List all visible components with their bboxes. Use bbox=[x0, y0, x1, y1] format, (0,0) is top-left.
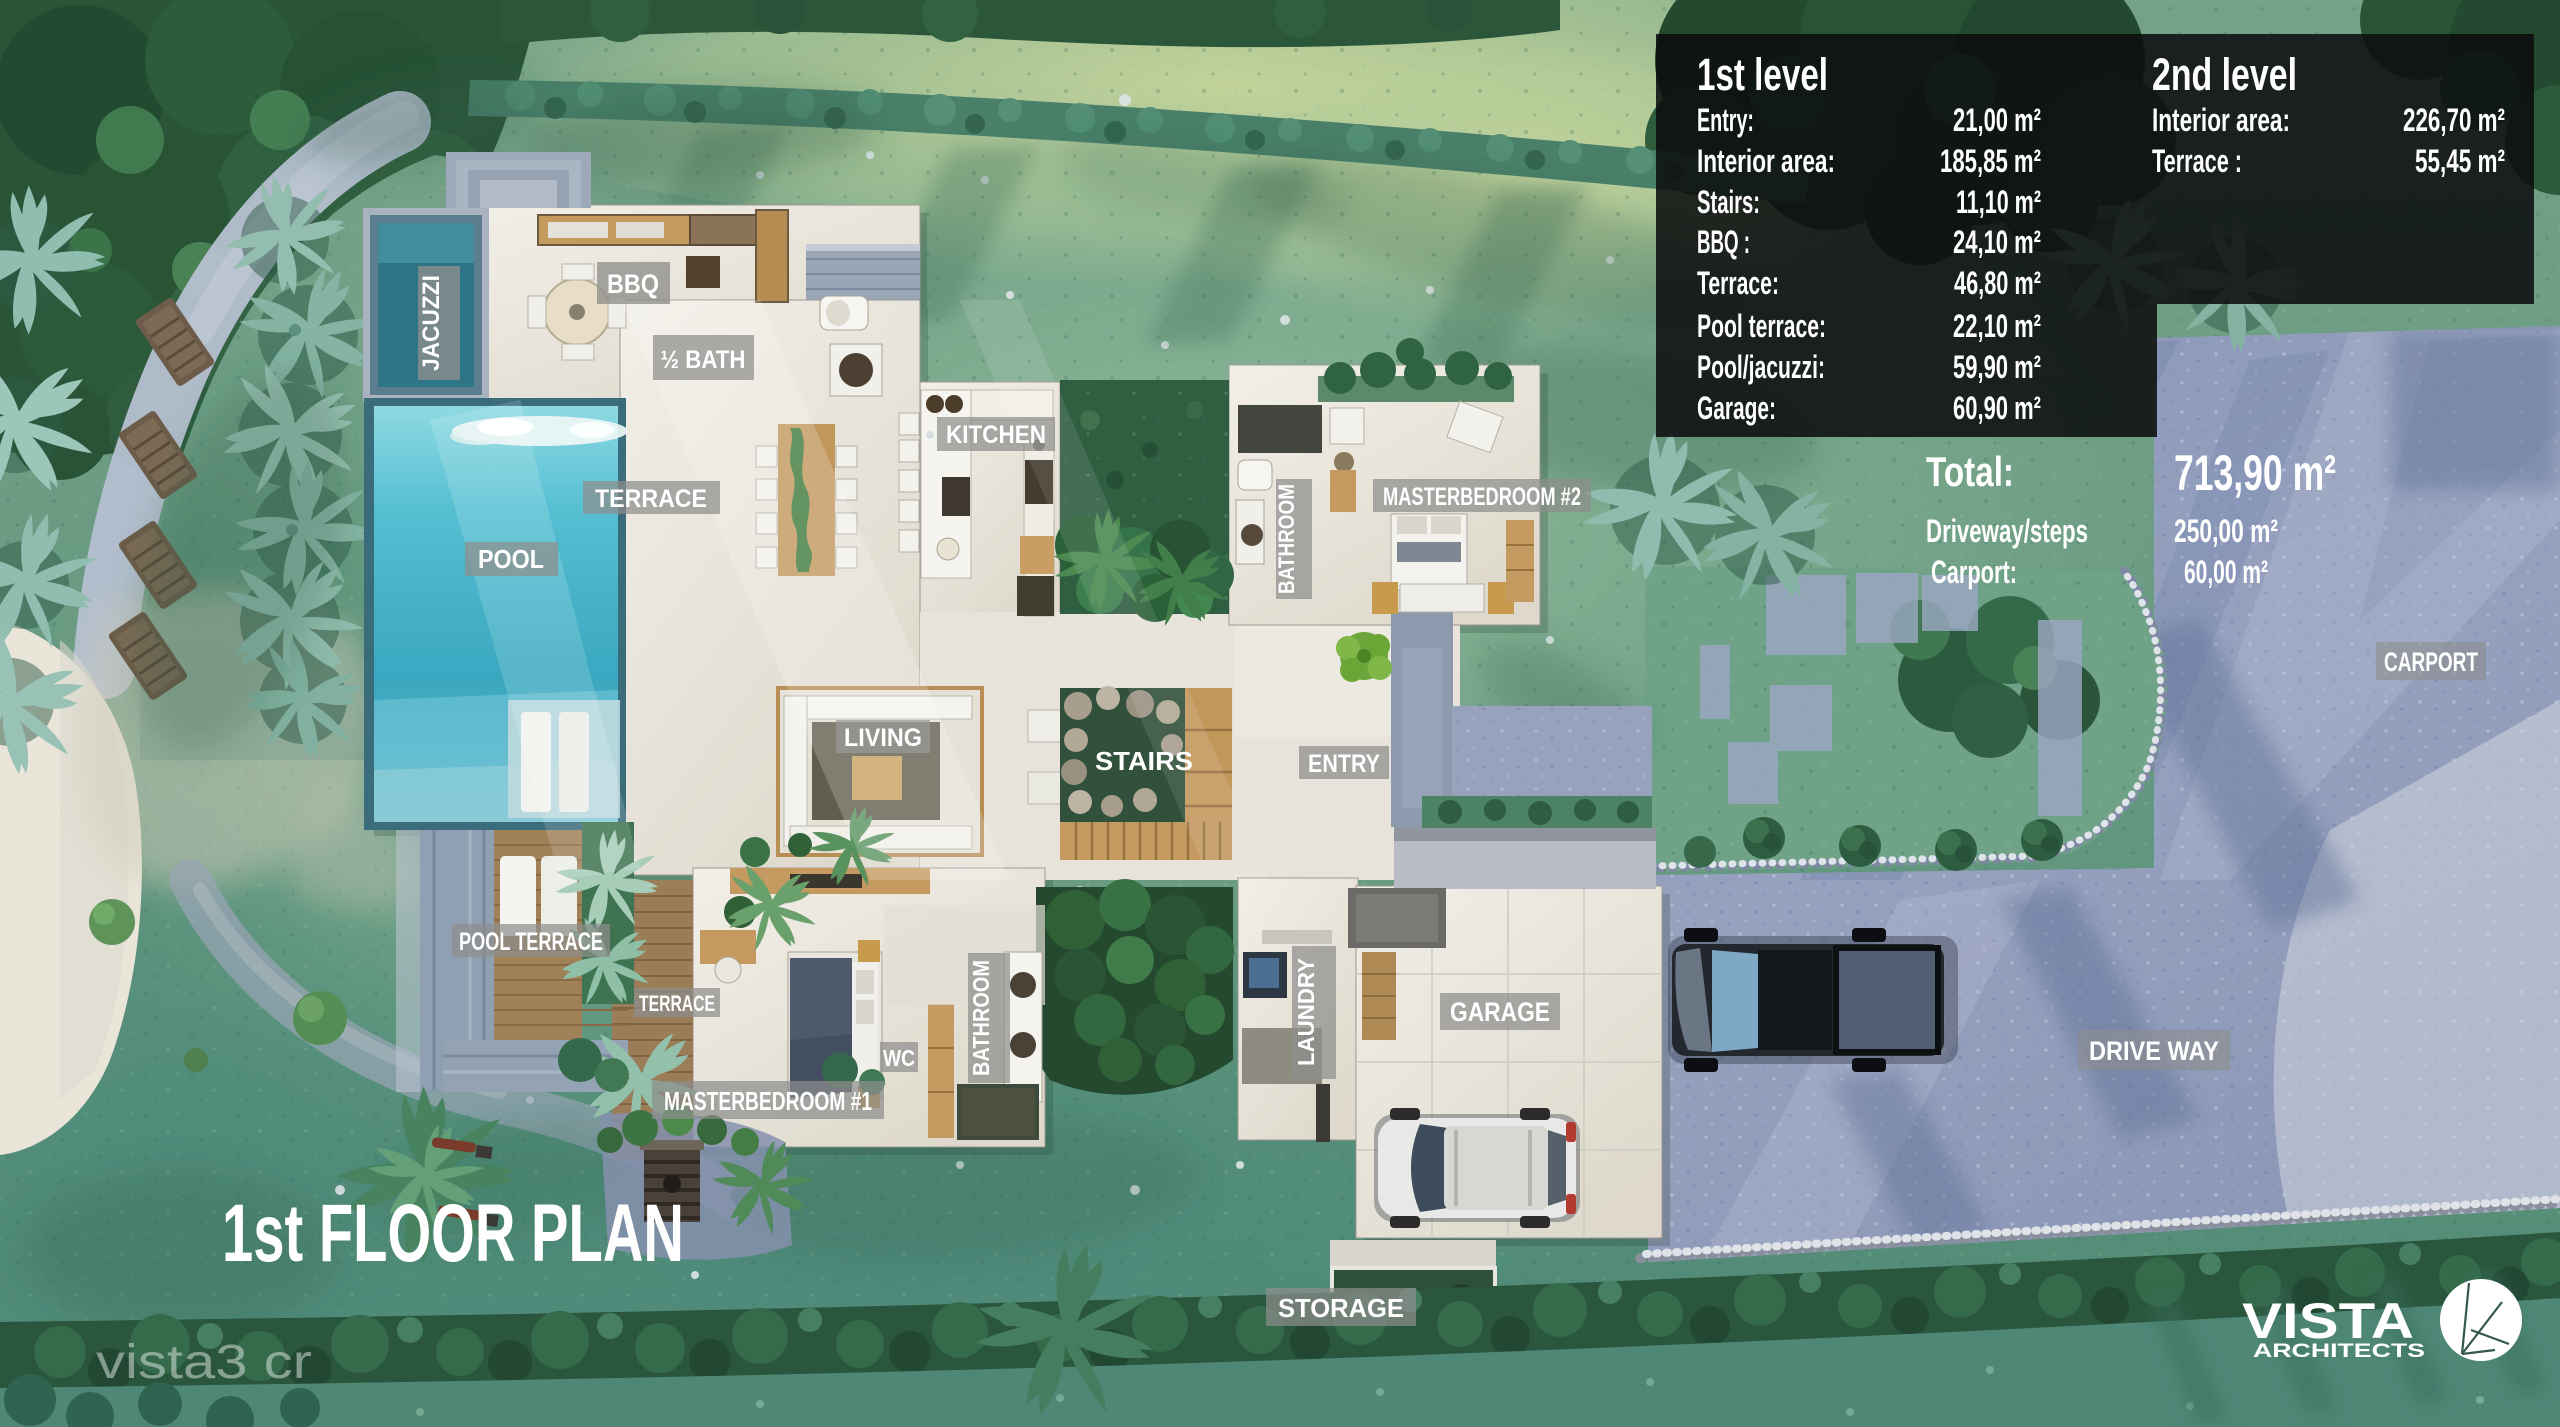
svg-text:ENTRY: ENTRY bbox=[1308, 750, 1380, 778]
svg-text:JACUZZI: JACUZZI bbox=[418, 275, 445, 371]
svg-text:LAUNDRY: LAUNDRY bbox=[1293, 958, 1319, 1066]
svg-text:BBQ :: BBQ : bbox=[1697, 224, 1750, 260]
svg-text:POOL TERRACE: POOL TERRACE bbox=[459, 928, 603, 956]
svg-text:250,00 m²: 250,00 m² bbox=[2174, 513, 2278, 549]
svg-text:Carport:: Carport: bbox=[1931, 554, 2017, 590]
svg-text:24,10 m²: 24,10 m² bbox=[1953, 224, 2041, 260]
svg-text:1st level: 1st level bbox=[1697, 49, 1828, 100]
svg-text:Total:: Total: bbox=[1926, 448, 2014, 495]
svg-text:Interior area:: Interior area: bbox=[2152, 102, 2290, 138]
svg-text:GARAGE: GARAGE bbox=[1450, 997, 1550, 1027]
svg-text:ARCHITECTS: ARCHITECTS bbox=[2253, 1341, 2425, 1362]
svg-text:POOL: POOL bbox=[478, 544, 544, 574]
svg-text:WC: WC bbox=[883, 1045, 915, 1071]
svg-text:Pool/jacuzzi:: Pool/jacuzzi: bbox=[1697, 349, 1825, 385]
svg-text:TERRACE: TERRACE bbox=[595, 485, 707, 513]
svg-text:Driveway/steps: Driveway/steps bbox=[1926, 513, 2088, 549]
svg-text:STORAGE: STORAGE bbox=[1278, 1293, 1404, 1323]
svg-text:MASTERBEDROOM #1: MASTERBEDROOM #1 bbox=[664, 1086, 872, 1116]
svg-text:Entry:: Entry: bbox=[1697, 102, 1754, 138]
svg-text:22,10 m²: 22,10 m² bbox=[1953, 308, 2041, 344]
svg-text:226,70 m²: 226,70 m² bbox=[2403, 102, 2505, 138]
svg-text:1st FLOOR PLAN: 1st FLOOR PLAN bbox=[222, 1188, 684, 1279]
svg-text:Garage:: Garage: bbox=[1697, 390, 1776, 426]
svg-text:MASTERBEDROOM #2: MASTERBEDROOM #2 bbox=[1383, 483, 1581, 511]
svg-text:DRIVE WAY: DRIVE WAY bbox=[2089, 1036, 2219, 1066]
svg-text:vista3 cr: vista3 cr bbox=[96, 1336, 312, 1389]
svg-text:LIVING: LIVING bbox=[844, 724, 922, 752]
svg-text:2nd level: 2nd level bbox=[2152, 49, 2297, 100]
svg-text:185,85 m²: 185,85 m² bbox=[1940, 143, 2041, 179]
svg-text:STAIRS: STAIRS bbox=[1095, 746, 1193, 776]
svg-text:KITCHEN: KITCHEN bbox=[946, 421, 1046, 449]
svg-text:46,80 m²: 46,80 m² bbox=[1954, 265, 2041, 301]
svg-text:Terrace :: Terrace : bbox=[2152, 143, 2242, 179]
svg-text:Pool terrace:: Pool terrace: bbox=[1697, 308, 1826, 344]
svg-text:TERRACE: TERRACE bbox=[639, 991, 715, 1016]
svg-text:Interior area:: Interior area: bbox=[1697, 143, 1835, 179]
svg-text:BATHROOM: BATHROOM bbox=[968, 960, 994, 1076]
svg-text:BATHROOM: BATHROOM bbox=[1274, 484, 1299, 594]
svg-text:713,90 m²: 713,90 m² bbox=[2174, 445, 2336, 501]
svg-text:60,00 m²: 60,00 m² bbox=[2184, 554, 2268, 590]
svg-text:BBQ: BBQ bbox=[607, 269, 659, 299]
svg-text:60,90 m²: 60,90 m² bbox=[1953, 390, 2041, 426]
svg-text:55,45 m²: 55,45 m² bbox=[2415, 143, 2505, 179]
svg-text:Stairs:: Stairs: bbox=[1697, 184, 1760, 220]
svg-text:Terrace:: Terrace: bbox=[1697, 265, 1779, 301]
svg-text:11,10 m²: 11,10 m² bbox=[1956, 184, 2041, 220]
svg-text:CARPORT: CARPORT bbox=[2384, 647, 2478, 677]
svg-text:½ BATH: ½ BATH bbox=[661, 346, 746, 374]
svg-text:59,90 m²: 59,90 m² bbox=[1953, 349, 2041, 385]
svg-text:21,00 m²: 21,00 m² bbox=[1953, 102, 2041, 138]
